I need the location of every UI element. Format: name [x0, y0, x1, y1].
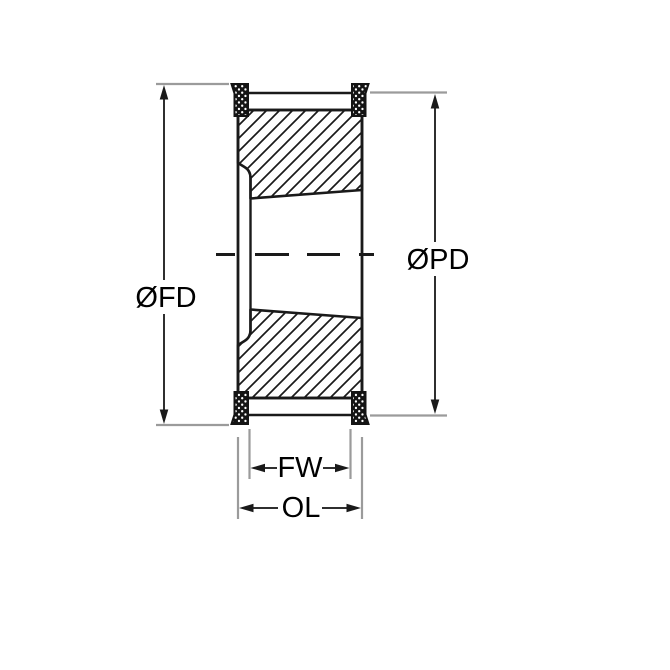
pulley-drawing: ØFD ØPD FW OL: [0, 0, 670, 670]
flange-bottom-left: [232, 392, 249, 424]
flange-top-right: [352, 84, 369, 116]
label-overall-length: OL: [282, 492, 321, 524]
lower-section-hatch: [238, 310, 362, 399]
flange-top-left: [232, 84, 249, 116]
flange-bottom-right: [352, 392, 369, 424]
arrow-pd-down: [431, 400, 440, 415]
arrow-ol-right: [347, 504, 362, 513]
label-pitch-diameter: ØPD: [407, 244, 470, 276]
pulley-drawing-svg: ØFD ØPD FW OL: [0, 0, 670, 670]
arrow-fd-up: [160, 85, 169, 100]
arrow-ol-left: [239, 504, 254, 513]
upper-section-hatch: [238, 110, 362, 199]
arrow-fd-down: [160, 410, 169, 425]
arrow-fw-right: [335, 464, 350, 473]
arrow-pd-up: [431, 94, 440, 109]
arrow-fw-left: [251, 464, 266, 473]
label-face-width: FW: [277, 452, 323, 484]
label-flange-diameter: ØFD: [135, 282, 196, 314]
